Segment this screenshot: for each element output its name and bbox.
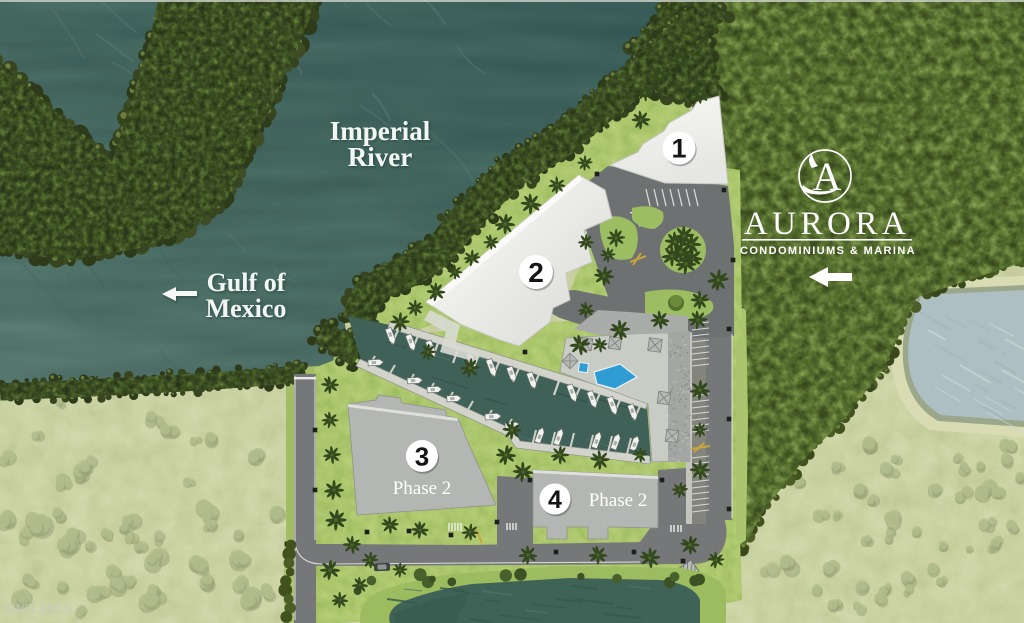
svg-text:1: 1 <box>671 134 686 164</box>
svg-text:Gulf of: Gulf of <box>207 268 286 297</box>
svg-text:3: 3 <box>415 441 429 471</box>
svg-text:SWFLAMLS: SWFLAMLS <box>4 602 73 616</box>
svg-text:Phase 2: Phase 2 <box>393 478 452 499</box>
svg-text:CONDOMINIUMS & MARINA: CONDOMINIUMS & MARINA <box>740 245 916 257</box>
svg-text:River: River <box>348 142 412 172</box>
svg-text:Mexico: Mexico <box>206 294 287 323</box>
svg-text:4: 4 <box>548 486 562 514</box>
svg-text:Phase 2: Phase 2 <box>589 490 648 511</box>
svg-text:AURORA: AURORA <box>744 206 910 242</box>
svg-text:2: 2 <box>528 257 544 288</box>
